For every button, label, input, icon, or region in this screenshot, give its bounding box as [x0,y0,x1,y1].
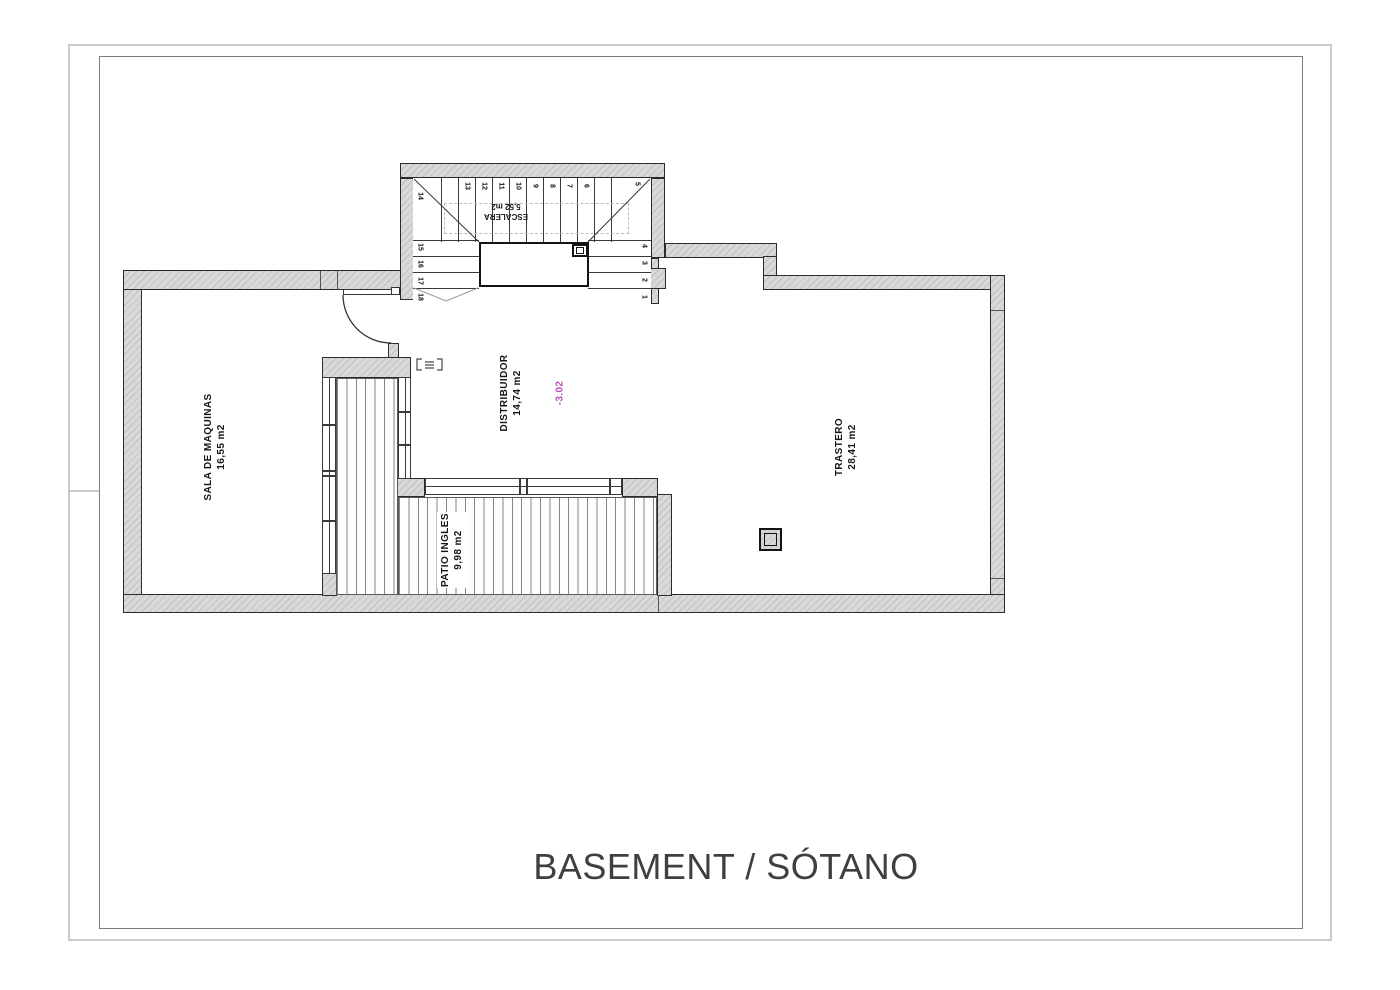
fold-mark [68,490,99,492]
tread-number: 17 [417,277,424,285]
stair-wall-right [651,178,665,258]
tread-number: 11 [498,182,505,189]
plan-title: BASEMENT / SÓTANO [533,846,918,888]
tread-number: 6 [583,184,590,188]
stair-void-corner-inner [576,247,584,254]
wall-joint [991,310,1004,311]
room-area: 14,74 m2 [511,354,524,431]
level-mark: -3.02 [555,381,566,406]
wall-joint [658,595,659,612]
window-patio-left [322,377,336,574]
patio-pier-right [622,478,658,497]
tread-number: 10 [515,182,522,190]
stair-dashed-landing [444,203,629,234]
inner-frame [99,56,1303,929]
stair-wall-top [400,163,665,178]
tread-number: 8 [549,184,556,188]
wall-bottom [123,594,1005,613]
room-name: PATIO INGLES [439,513,452,587]
room-label-escalera: ESCALERA 5,52 m2 [484,201,528,221]
window-patio-inner [398,377,411,479]
tread-number: 16 [417,260,424,268]
wall-joint [991,578,1004,579]
room-area: 5,52 m2 [484,201,528,211]
room-name: TRASTERO [833,418,846,476]
tread-number: 15 [417,243,424,251]
room-name: DISTRIBUIDOR [498,354,511,431]
pillar-inner [764,533,777,546]
tread-number: 7 [566,184,573,188]
tread-number: 9 [532,184,539,188]
room-label-distribuidor: DISTRIBUIDOR 14,74 m2 [498,354,524,431]
patio-deck-vertical [336,378,398,595]
wall-joint [320,271,321,289]
door-hinge [391,287,400,295]
room-label-sala: SALA DE MAQUINAS 16,55 m2 [202,393,228,500]
wall-top-left [123,270,415,290]
wall-top-right [763,275,1005,290]
stair-wall-left [400,178,414,300]
tread-number: 5 [634,182,641,186]
tread-number: 12 [481,182,488,190]
drawing-sheet: 1 2 3 4 5 6 7 8 9 10 11 12 13 14 15 16 1… [0,0,1400,990]
door-jamb-stub [388,343,399,358]
patio-wall-right [657,494,672,596]
room-area: 16,55 m2 [215,393,228,500]
wall-joint [337,271,338,289]
room-name: SALA DE MAQUINAS [202,393,215,500]
patio-pier-left [322,573,337,596]
wall-band-upper [665,243,777,258]
room-area: 9,98 m2 [452,513,465,587]
wall-right [990,275,1005,613]
patio-pier-corner [397,478,425,497]
room-name: ESCALERA [484,211,528,221]
door-leaf [343,289,393,295]
wall-left [123,270,142,613]
room-label-patio: PATIO INGLES 9,98 m2 [437,512,467,588]
wall-notch [763,256,777,277]
tread-number: 1 [641,295,648,299]
tread-number: 14 [417,192,424,200]
tread-number: 3 [641,261,648,265]
window-patio-top [425,478,622,495]
room-area: 28,41 m2 [846,418,859,476]
tread-number: 2 [641,278,648,282]
patio-wall-top [322,357,411,378]
tread-number: 13 [464,182,471,190]
tread-number: 4 [641,244,648,248]
tread-number: 18 [417,293,424,301]
room-label-trastero: TRASTERO 28,41 m2 [833,418,859,476]
